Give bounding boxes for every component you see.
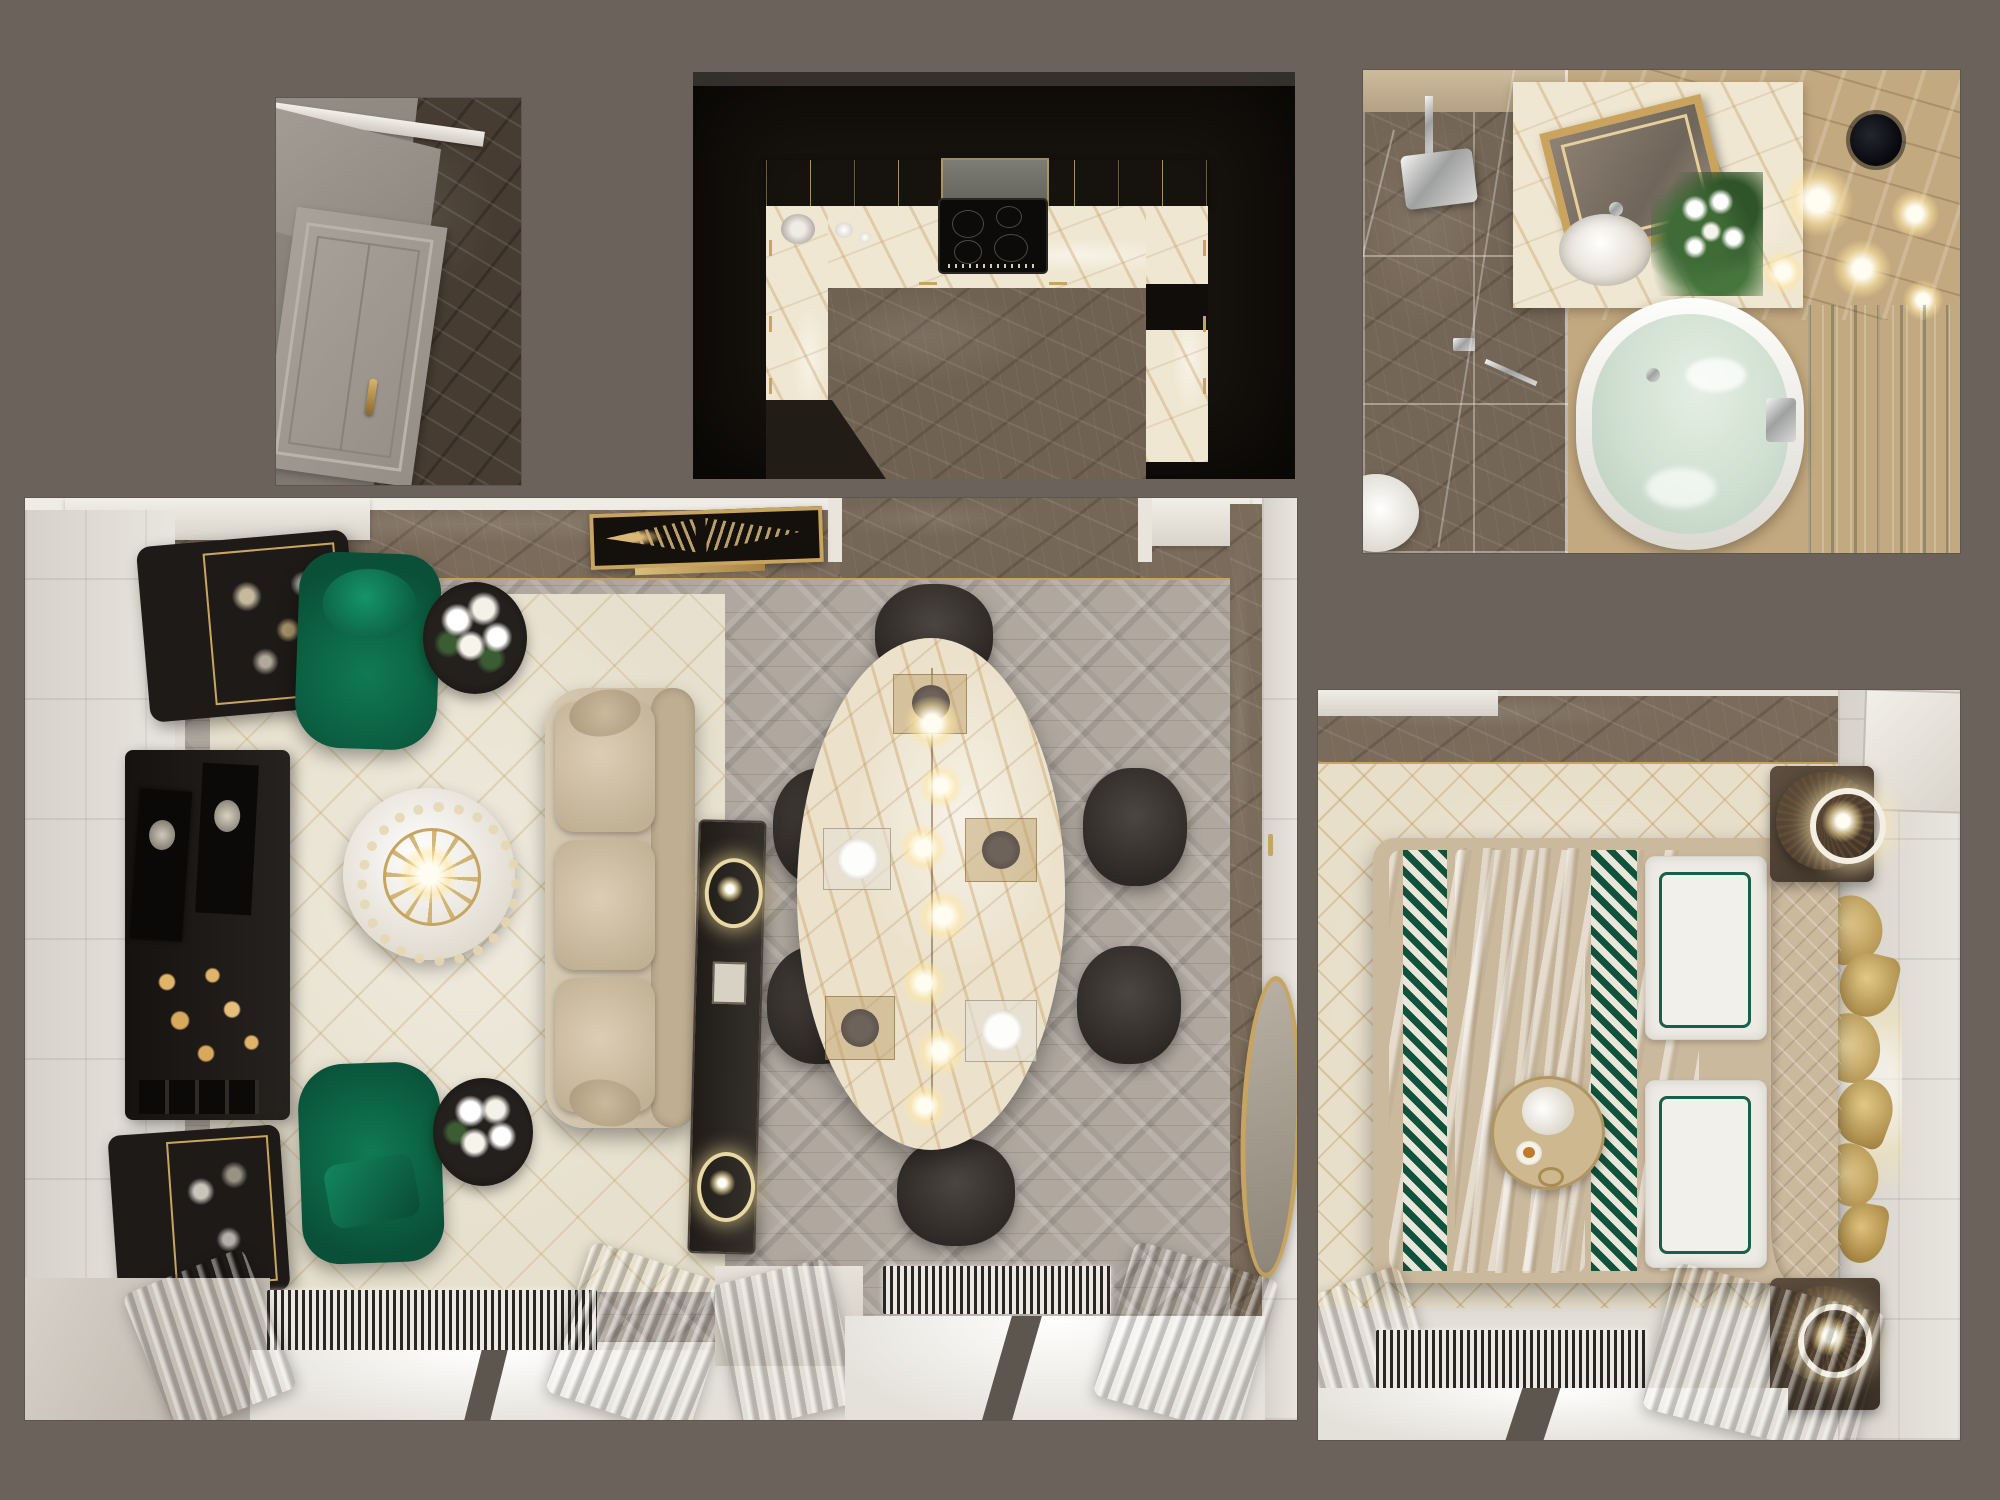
water-highlight: [1686, 358, 1746, 392]
pendant-bulb-cluster: [899, 824, 947, 872]
pendant-bulb-cluster: [919, 764, 963, 808]
beige-sofa: [545, 688, 695, 1128]
drawer-handle: [919, 282, 937, 285]
sink-faucet: [1609, 202, 1623, 216]
radiator-bay1: [267, 1290, 597, 1352]
cabinet-handle: [769, 316, 772, 332]
double-bed: [1373, 838, 1838, 1283]
black-ceiling-speaker: [1850, 114, 1902, 166]
pendant-bulb-cluster: [915, 1026, 965, 1076]
ceiling-light-orb: [1833, 240, 1891, 298]
dining-chair-right-2: [1077, 946, 1181, 1064]
cabinet-handle: [1203, 378, 1206, 394]
green-armchair-top: [294, 551, 443, 752]
console-knobs: [141, 960, 271, 1070]
plate-stack: [781, 214, 815, 244]
kitchen-marble-floor: [828, 288, 1146, 479]
panel-hallway: [276, 98, 521, 485]
drawer-handle: [1049, 282, 1067, 285]
bathtub: [1576, 298, 1804, 550]
pendant-bulb-cluster: [903, 1084, 947, 1128]
white-flowers: [1671, 182, 1751, 272]
burner: [952, 210, 984, 238]
pillow-green-trim: [1659, 1096, 1751, 1254]
pendant-bulb-cluster: [905, 696, 959, 750]
kitchen-top-frame: [693, 72, 1295, 86]
cabinet-handle: [769, 378, 772, 394]
chandelier-glow: [399, 844, 459, 904]
tray-flowers: [1522, 1087, 1574, 1135]
gold-palm-leaf: [605, 518, 696, 555]
kitchen-right-niche: [1146, 284, 1208, 330]
ring-lamp-bulb: [717, 876, 744, 903]
place-setting: [965, 818, 1037, 882]
plate: [982, 1011, 1022, 1051]
ceiling-art-panel: [589, 506, 824, 570]
dining-chair-bottom: [897, 1138, 1015, 1246]
cabinet-handle: [1203, 316, 1206, 332]
panel-bedroom: [1318, 690, 1960, 1440]
ring-lamp-console: [687, 819, 766, 1255]
burner: [954, 240, 982, 264]
gold-palm-leaf: [705, 515, 801, 552]
flower-side-table-bottom: [433, 1078, 533, 1186]
green-onyx-wall: [1808, 305, 1960, 553]
panel-living-dining: [25, 498, 1297, 1420]
induction-cooktop: [940, 200, 1046, 272]
ceiling-light-orb: [1761, 250, 1805, 294]
pendant-bulb-cluster: [901, 960, 947, 1006]
bath-faucet: [1766, 398, 1796, 442]
green-armchair-bottom: [297, 1061, 446, 1266]
plate: [838, 839, 878, 879]
armchair-cushion: [321, 567, 417, 640]
flower-side-table-top: [423, 582, 527, 694]
passage-jamb: [828, 498, 842, 562]
armchair-pillow: [322, 1152, 422, 1231]
coffee: [1523, 1147, 1535, 1158]
plate: [841, 1009, 879, 1047]
white-flower-bouquet: [431, 590, 519, 676]
panel-kitchen: [693, 72, 1295, 479]
artwork-blob: [213, 799, 241, 832]
media-console: [125, 750, 290, 1120]
rain-shower-head: [1400, 148, 1478, 210]
radiator-bay2: [883, 1266, 1111, 1314]
bath-drain: [1646, 368, 1660, 382]
place-setting: [823, 828, 891, 890]
green-diamond-runner: [1403, 850, 1447, 1271]
dining-table: [797, 638, 1065, 1150]
pillow-green-trim: [1659, 872, 1751, 1028]
oval-sink: [1559, 214, 1651, 286]
ring-lamp-bulb: [709, 1170, 736, 1197]
ceiling-light-orb: [1783, 166, 1853, 236]
lamp-glow-top: [1822, 800, 1864, 842]
coffee-table: [343, 788, 515, 960]
ceiling-light-orb: [1891, 190, 1939, 238]
beige-throw: [1455, 848, 1585, 1273]
interior-collage: [0, 0, 2000, 1500]
cabinet-handle: [769, 240, 772, 256]
sofa-seat-cushion: [555, 840, 655, 970]
kitchen-passage-floor: [840, 498, 1140, 578]
burner: [994, 234, 1028, 262]
bedroom-door-top-right: [1861, 690, 1960, 814]
breakfast-tray: [1491, 1076, 1605, 1190]
water-highlight: [1646, 468, 1716, 508]
sofa-back-roll: [651, 688, 695, 1128]
white-flower-bouquet: [441, 1086, 525, 1170]
cooktop-controls: [948, 264, 1038, 268]
curved-headboard: [1771, 832, 1841, 1289]
console-artwork: [195, 763, 259, 916]
tv-panel: [130, 788, 192, 941]
rain-shower-arm: [1425, 96, 1433, 158]
burner: [996, 206, 1022, 228]
panel-bathroom: [1363, 70, 1960, 553]
cabinet-handle: [1203, 240, 1206, 256]
white-cup: [859, 232, 871, 243]
place-setting: [965, 1000, 1037, 1062]
dining-chair-right-1: [1083, 768, 1187, 886]
tray-handle: [1538, 1167, 1564, 1187]
console-speaker-panels: [139, 1080, 259, 1114]
plate: [982, 831, 1020, 869]
tv-artwork-blob: [148, 819, 176, 851]
pendant-bulb-cluster: [917, 890, 969, 942]
place-setting: [825, 996, 895, 1060]
green-diamond-runner: [1591, 850, 1637, 1271]
console-print: [712, 962, 747, 1005]
right-door-handle: [1268, 834, 1273, 856]
passage-jamb: [1138, 498, 1152, 562]
bedroom-ceiling-molding: [1318, 690, 1498, 716]
white-teapot: [835, 222, 853, 238]
bedroom-radiator: [1376, 1330, 1648, 1388]
kitchen-counter-right: [1146, 206, 1208, 462]
